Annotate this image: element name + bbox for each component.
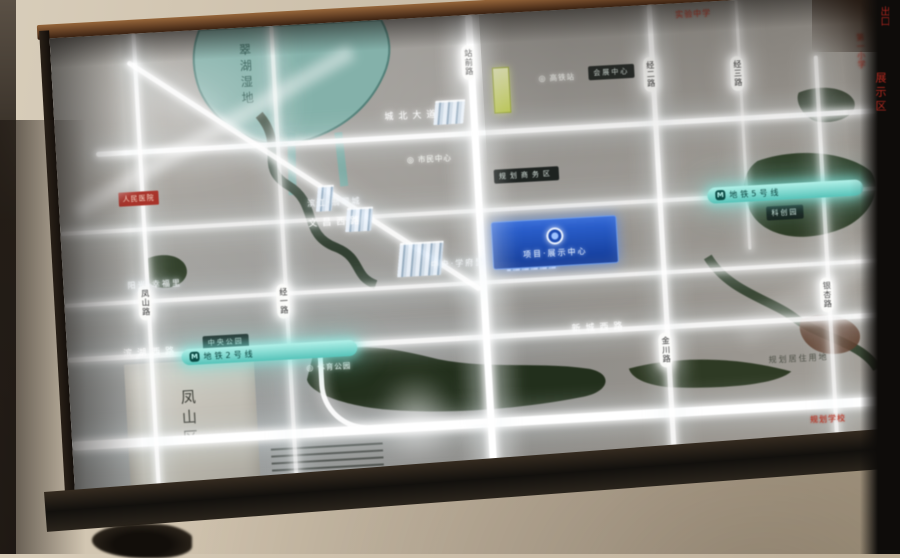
map-lightbox-board: 翠湖湿地 凤山区 [50, 0, 900, 508]
poi-ring-icon: ◎ [306, 363, 314, 372]
metro-icon: M [189, 352, 200, 363]
poi-text: 体育公园 [317, 360, 352, 373]
lake-label: 翠湖湿地 [236, 43, 257, 108]
red-label-hospital: 人民医院 [118, 191, 159, 207]
red-vertical-sign: 展示区 [872, 72, 888, 114]
red-label-school-3: 规划学校 [810, 413, 847, 426]
statue-silhouette [92, 524, 192, 558]
dark-label-expo: 会展中心 [588, 64, 635, 81]
poi-label: ◎ 高铁站 [538, 71, 575, 84]
exit-sign-red: 出口 [876, 6, 891, 26]
project-sign: 项目·展示中心 [490, 215, 618, 270]
road-label-capsule: 站前路 [461, 45, 476, 81]
project-logo-icon [545, 227, 563, 245]
project-name: 项目·展示中心 [523, 245, 588, 260]
map-surface: 翠湖湿地 凤山区 [50, 0, 900, 508]
road-label-capsule: 经二路 [643, 57, 658, 93]
river-south-blob-2 [629, 354, 792, 392]
red-label-school-1: 实验中学 [675, 7, 712, 20]
poi-ring-icon: ◎ [407, 155, 415, 164]
park-northeast [797, 86, 856, 124]
road-label-capsule: 银杏路 [819, 277, 834, 313]
map-content: 翠湖湿地 凤山区 [50, 0, 900, 508]
road-label-capsule: 经三路 [730, 56, 745, 92]
metro-line-label: 地铁2号线 [203, 348, 256, 362]
landmark-yellow-tower [492, 67, 512, 114]
dark-label-techpark: 科创园 [766, 205, 804, 221]
metro-icon: M [715, 190, 726, 201]
road-label-capsule: 经一路 [276, 283, 291, 319]
metro-line-label: 地铁5号线 [729, 186, 782, 200]
poi-ring-icon: ◎ [538, 74, 546, 83]
road-label-capsule: 金川路 [658, 332, 673, 368]
poi-text: 市民中心 [418, 152, 453, 165]
lake-shape [192, 19, 394, 148]
poi-text: 高铁站 [549, 71, 575, 83]
